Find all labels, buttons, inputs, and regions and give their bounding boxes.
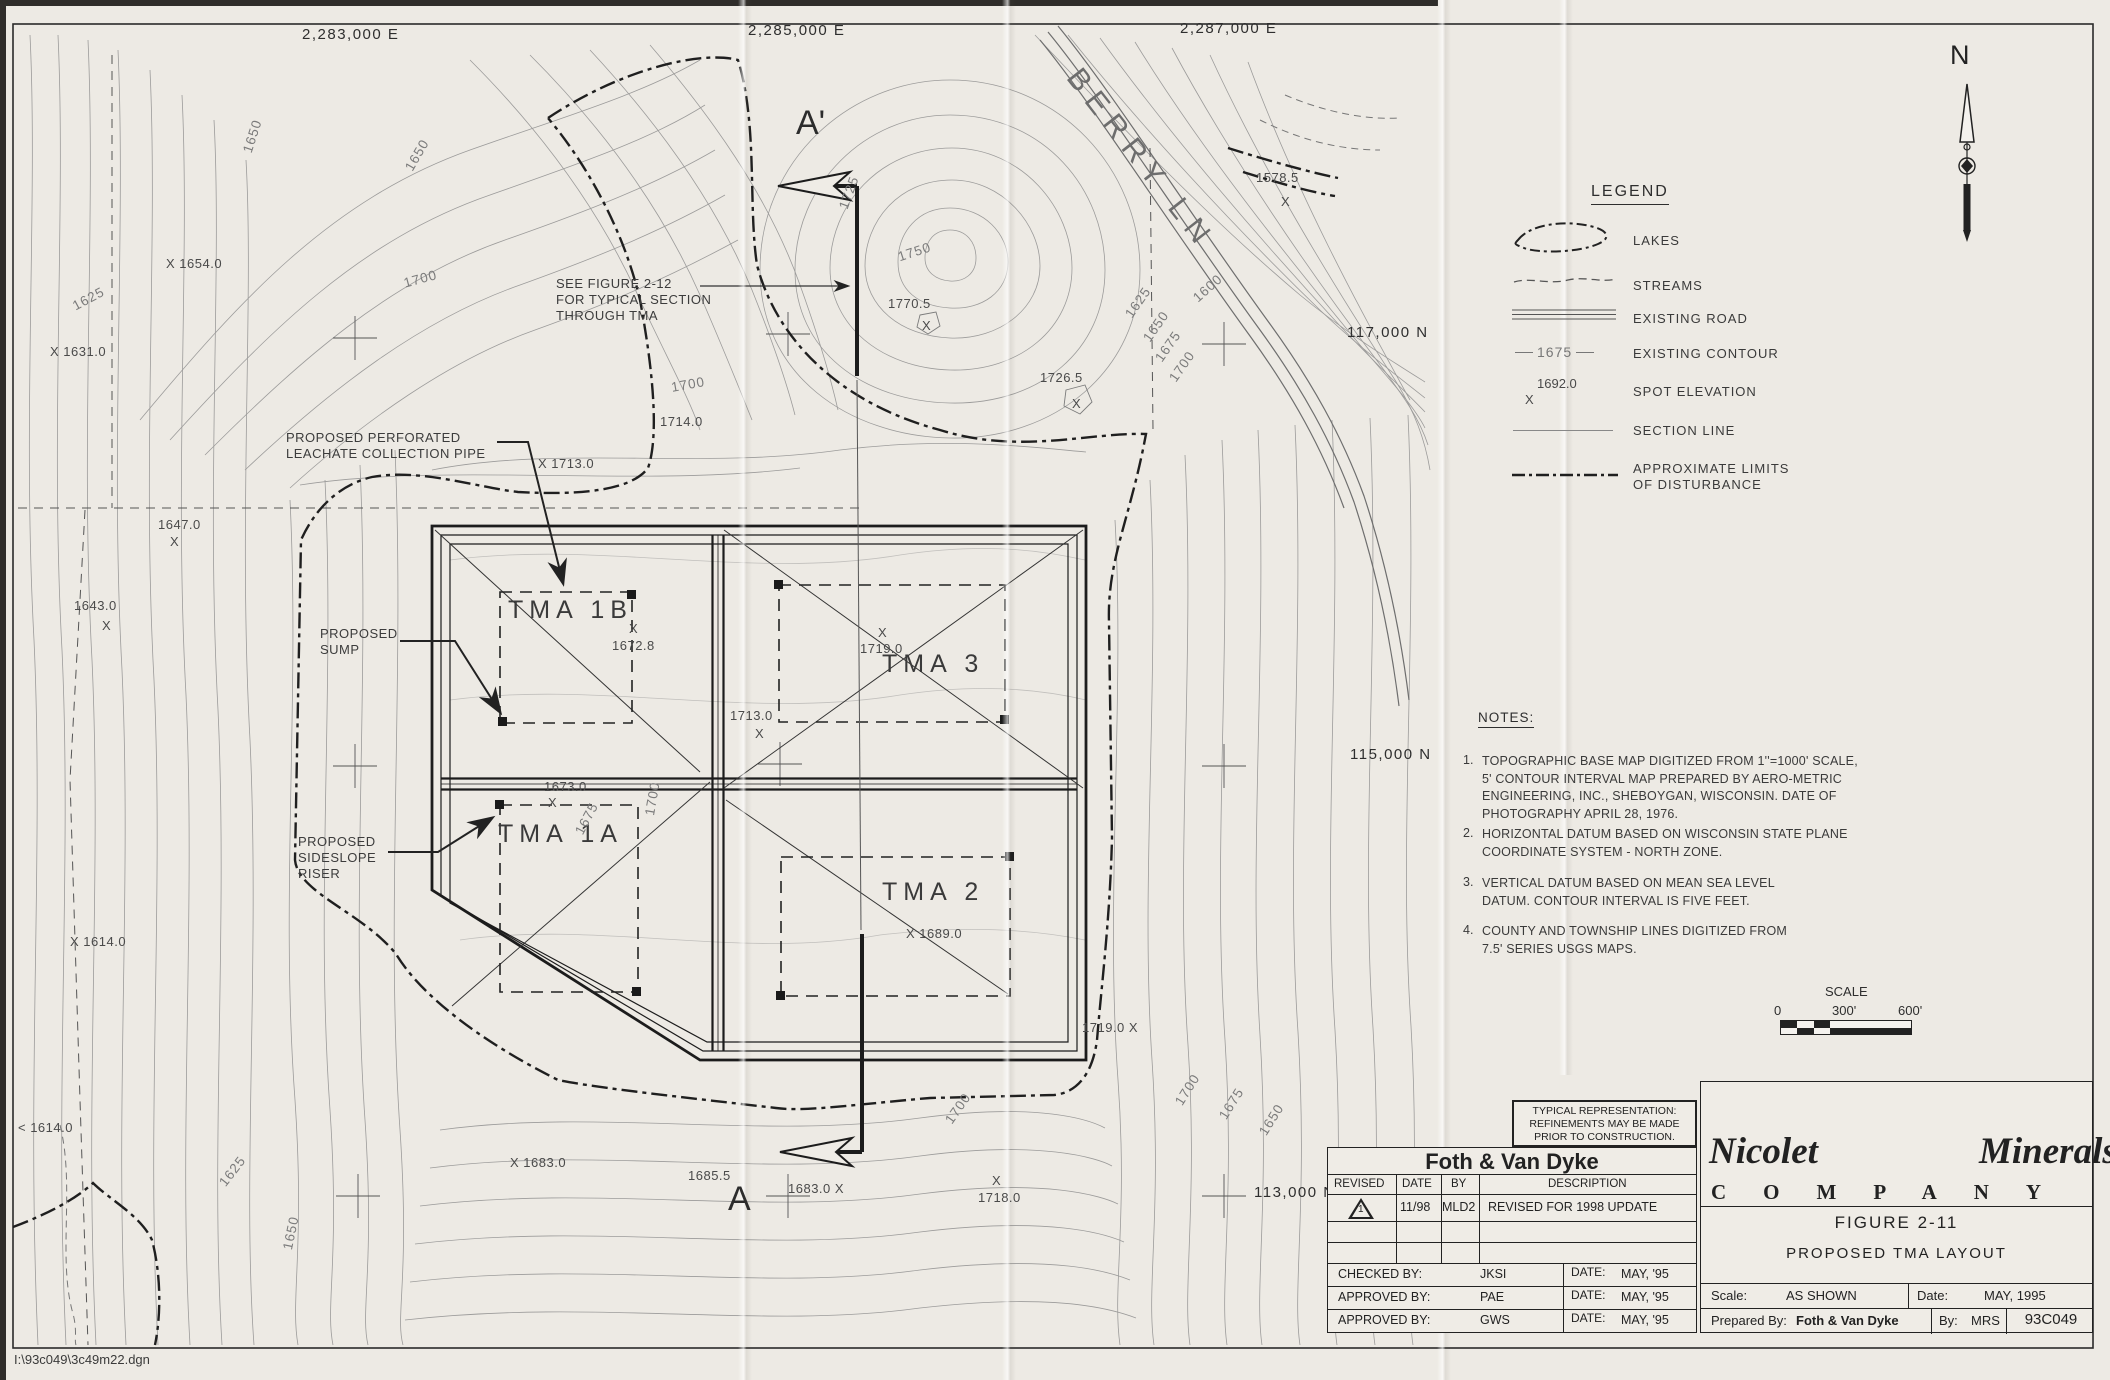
- firm-name: Foth & Van Dyke: [1328, 1149, 1696, 1175]
- divider: [1396, 1174, 1397, 1263]
- divider: [1328, 1174, 1696, 1175]
- checked-by-label: CHECKED BY:: [1338, 1267, 1422, 1281]
- revision-title-block: Foth & Van Dyke REVISED DATE BY DESCRIPT…: [1327, 1147, 1697, 1333]
- typical-representation-text: TYPICAL REPRESENTATION: REFINEMENTS MAY …: [1514, 1102, 1695, 1144]
- contour-label: 1700: [642, 780, 663, 816]
- scale-tick-300: 300': [1832, 1003, 1856, 1018]
- contour-label: 1700: [670, 374, 706, 395]
- rev-header-description: DESCRIPTION: [1548, 1178, 1627, 1190]
- divider: [1479, 1174, 1480, 1263]
- legend-existing-contour: EXISTING CONTOUR: [1633, 346, 1779, 362]
- scale-bar-cells: [1780, 1020, 1912, 1035]
- note-text: TOPOGRAPHIC BASE MAP DIGITIZED FROM 1''=…: [1482, 753, 1922, 823]
- divider: [1328, 1221, 1696, 1222]
- approved-date-value-2: MAY, '95: [1621, 1313, 1669, 1327]
- scale-tick-600: 600': [1898, 1003, 1922, 1018]
- contour-label: 1675: [1216, 1085, 1247, 1122]
- scale-label: Scale:: [1711, 1288, 1747, 1303]
- approved-by-value-2: GWS: [1480, 1313, 1510, 1327]
- typical-representation-note: TYPICAL REPRESENTATION: REFINEMENTS MAY …: [1512, 1100, 1697, 1147]
- rev-header-by: BY: [1451, 1178, 1466, 1190]
- divider: [1328, 1286, 1696, 1287]
- divider: [1441, 1174, 1442, 1263]
- rev-header-revised: REVISED: [1334, 1178, 1385, 1190]
- lakes-swatch-icon: [1510, 218, 1622, 260]
- drawing-number: 93C049: [2011, 1311, 2091, 1328]
- file-path: I:\93c049\3c49m22.dgn: [14, 1352, 150, 1367]
- approved-by-label-1: APPROVED BY:: [1338, 1290, 1430, 1304]
- divider: [2006, 1308, 2007, 1334]
- note-text: VERTICAL DATUM BASED ON MEAN SEA LEVEL D…: [1482, 875, 1922, 910]
- divider: [1701, 1283, 2092, 1284]
- drawing-sheet: { "sheet": { "eastings": ["2,283,000 E",…: [0, 0, 2110, 1380]
- company-name-left: Nicolet: [1709, 1130, 1818, 1173]
- checked-by-value: JKSI: [1480, 1267, 1506, 1281]
- contour-label: 1625: [70, 284, 107, 313]
- scale-cell: [1830, 1028, 1846, 1035]
- contour-label: 1725: [836, 174, 862, 211]
- legend-section-line: SECTION LINE: [1633, 423, 1735, 439]
- road-swatch-icon: [1510, 306, 1622, 324]
- divider: [1701, 1206, 2092, 1207]
- contour-label: 1700: [1172, 1071, 1203, 1108]
- date-label: Date:: [1917, 1288, 1948, 1303]
- section-line-swatch: [1513, 430, 1613, 431]
- checked-date-value: MAY, '95: [1621, 1267, 1669, 1281]
- contour-swatch-line: [1576, 352, 1594, 353]
- divider: [1563, 1263, 1564, 1332]
- by-label: By:: [1939, 1313, 1958, 1328]
- approved-by-value-1: PAE: [1480, 1290, 1504, 1304]
- contour-label: 1700: [942, 1090, 974, 1126]
- legend-streams: STREAMS: [1633, 278, 1703, 294]
- scale-cell: [1814, 1028, 1830, 1035]
- spot-sample-value: 1692.0: [1537, 376, 1577, 391]
- contour-label: 1650: [240, 118, 265, 155]
- checked-date-label: DATE:: [1571, 1265, 1605, 1279]
- revision-date: 11/98: [1400, 1200, 1430, 1214]
- contour-label: 1675: [572, 800, 601, 837]
- contour-swatch-line: [1515, 352, 1533, 353]
- note-number: 3.: [1463, 875, 1483, 889]
- scale-value: AS SHOWN: [1786, 1288, 1857, 1303]
- contour-label: 1750: [896, 239, 933, 264]
- prepared-by-label: Prepared By:: [1711, 1313, 1787, 1328]
- contour-sample-value: 1675: [1537, 344, 1572, 360]
- divider: [1931, 1308, 1932, 1334]
- legend: LEGEND LAKES STREAMS EXISTING ROAD 1675 …: [1505, 178, 1835, 528]
- note-number: 2.: [1463, 826, 1483, 840]
- scale-tick-0: 0: [1774, 1003, 1781, 1018]
- limits-swatch-icon: [1510, 468, 1622, 482]
- company-name-right: Minerals: [1979, 1130, 2110, 1173]
- contour-label: 1650: [280, 1215, 302, 1251]
- divider: [1328, 1263, 1696, 1264]
- contour-label: 1650: [402, 137, 432, 174]
- rev-header-date: DATE: [1402, 1178, 1432, 1190]
- scale-bar-title: SCALE: [1825, 984, 1868, 999]
- divider: [1908, 1283, 1909, 1308]
- date-value: MAY, 1995: [1984, 1288, 2046, 1303]
- scale-cell: [1846, 1028, 1911, 1035]
- approved-date-label-1: DATE:: [1571, 1288, 1605, 1302]
- company-title-block: Nicolet Minerals COMPANY FIGURE 2-11 PRO…: [1700, 1081, 2093, 1333]
- figure-number: FIGURE 2-11: [1701, 1213, 2092, 1233]
- spot-sample-marker: X: [1525, 392, 1534, 407]
- notes-title: NOTES:: [1478, 710, 1534, 728]
- contour-label: 1650: [1256, 1101, 1287, 1138]
- contour-label: 1625: [1122, 284, 1154, 320]
- scale-cell: [1781, 1028, 1797, 1035]
- legend-limits-of-disturbance: APPROXIMATE LIMITS OF DISTURBANCE: [1633, 461, 1789, 493]
- divider: [1328, 1309, 1696, 1310]
- divider: [1328, 1242, 1696, 1243]
- scale-bar: SCALE 0 300' 600': [1760, 984, 1960, 1044]
- revision-number: 1: [1358, 1204, 1364, 1215]
- note-number: 1.: [1463, 753, 1483, 767]
- revision-by: MLD2: [1442, 1200, 1475, 1214]
- contour-swatch: 1675: [1515, 344, 1594, 360]
- scale-cell: [1797, 1028, 1813, 1035]
- drawing-title: PROPOSED TMA LAYOUT: [1701, 1245, 2092, 1262]
- contour-label: 1625: [216, 1153, 249, 1189]
- legend-existing-road: EXISTING ROAD: [1633, 311, 1748, 327]
- note-text: HORIZONTAL DATUM BASED ON WISCONSIN STAT…: [1482, 826, 1922, 861]
- approved-date-value-1: MAY, '95: [1621, 1290, 1669, 1304]
- approved-date-label-2: DATE:: [1571, 1311, 1605, 1325]
- contour-label: 1600: [1190, 271, 1225, 305]
- by-value: MRS: [1971, 1313, 2000, 1328]
- prepared-by-value: Foth & Van Dyke: [1796, 1313, 1899, 1328]
- company-word: COMPANY: [1711, 1180, 2078, 1205]
- legend-spot-elevation: SPOT ELEVATION: [1633, 384, 1757, 400]
- revision-description: REVISED FOR 1998 UPDATE: [1488, 1200, 1657, 1214]
- revision-triangle-icon: 1: [1348, 1198, 1374, 1219]
- legend-title: LEGEND: [1591, 183, 1669, 205]
- divider: [1328, 1194, 1696, 1195]
- contour-label: 1700: [402, 267, 439, 290]
- approved-by-label-2: APPROVED BY:: [1338, 1313, 1430, 1327]
- divider: [1701, 1308, 2092, 1309]
- streams-swatch-icon: [1510, 273, 1622, 291]
- note-text: COUNTY AND TOWNSHIP LINES DIGITIZED FROM…: [1482, 923, 1922, 958]
- legend-lakes: LAKES: [1633, 233, 1680, 249]
- note-number: 4.: [1463, 923, 1483, 937]
